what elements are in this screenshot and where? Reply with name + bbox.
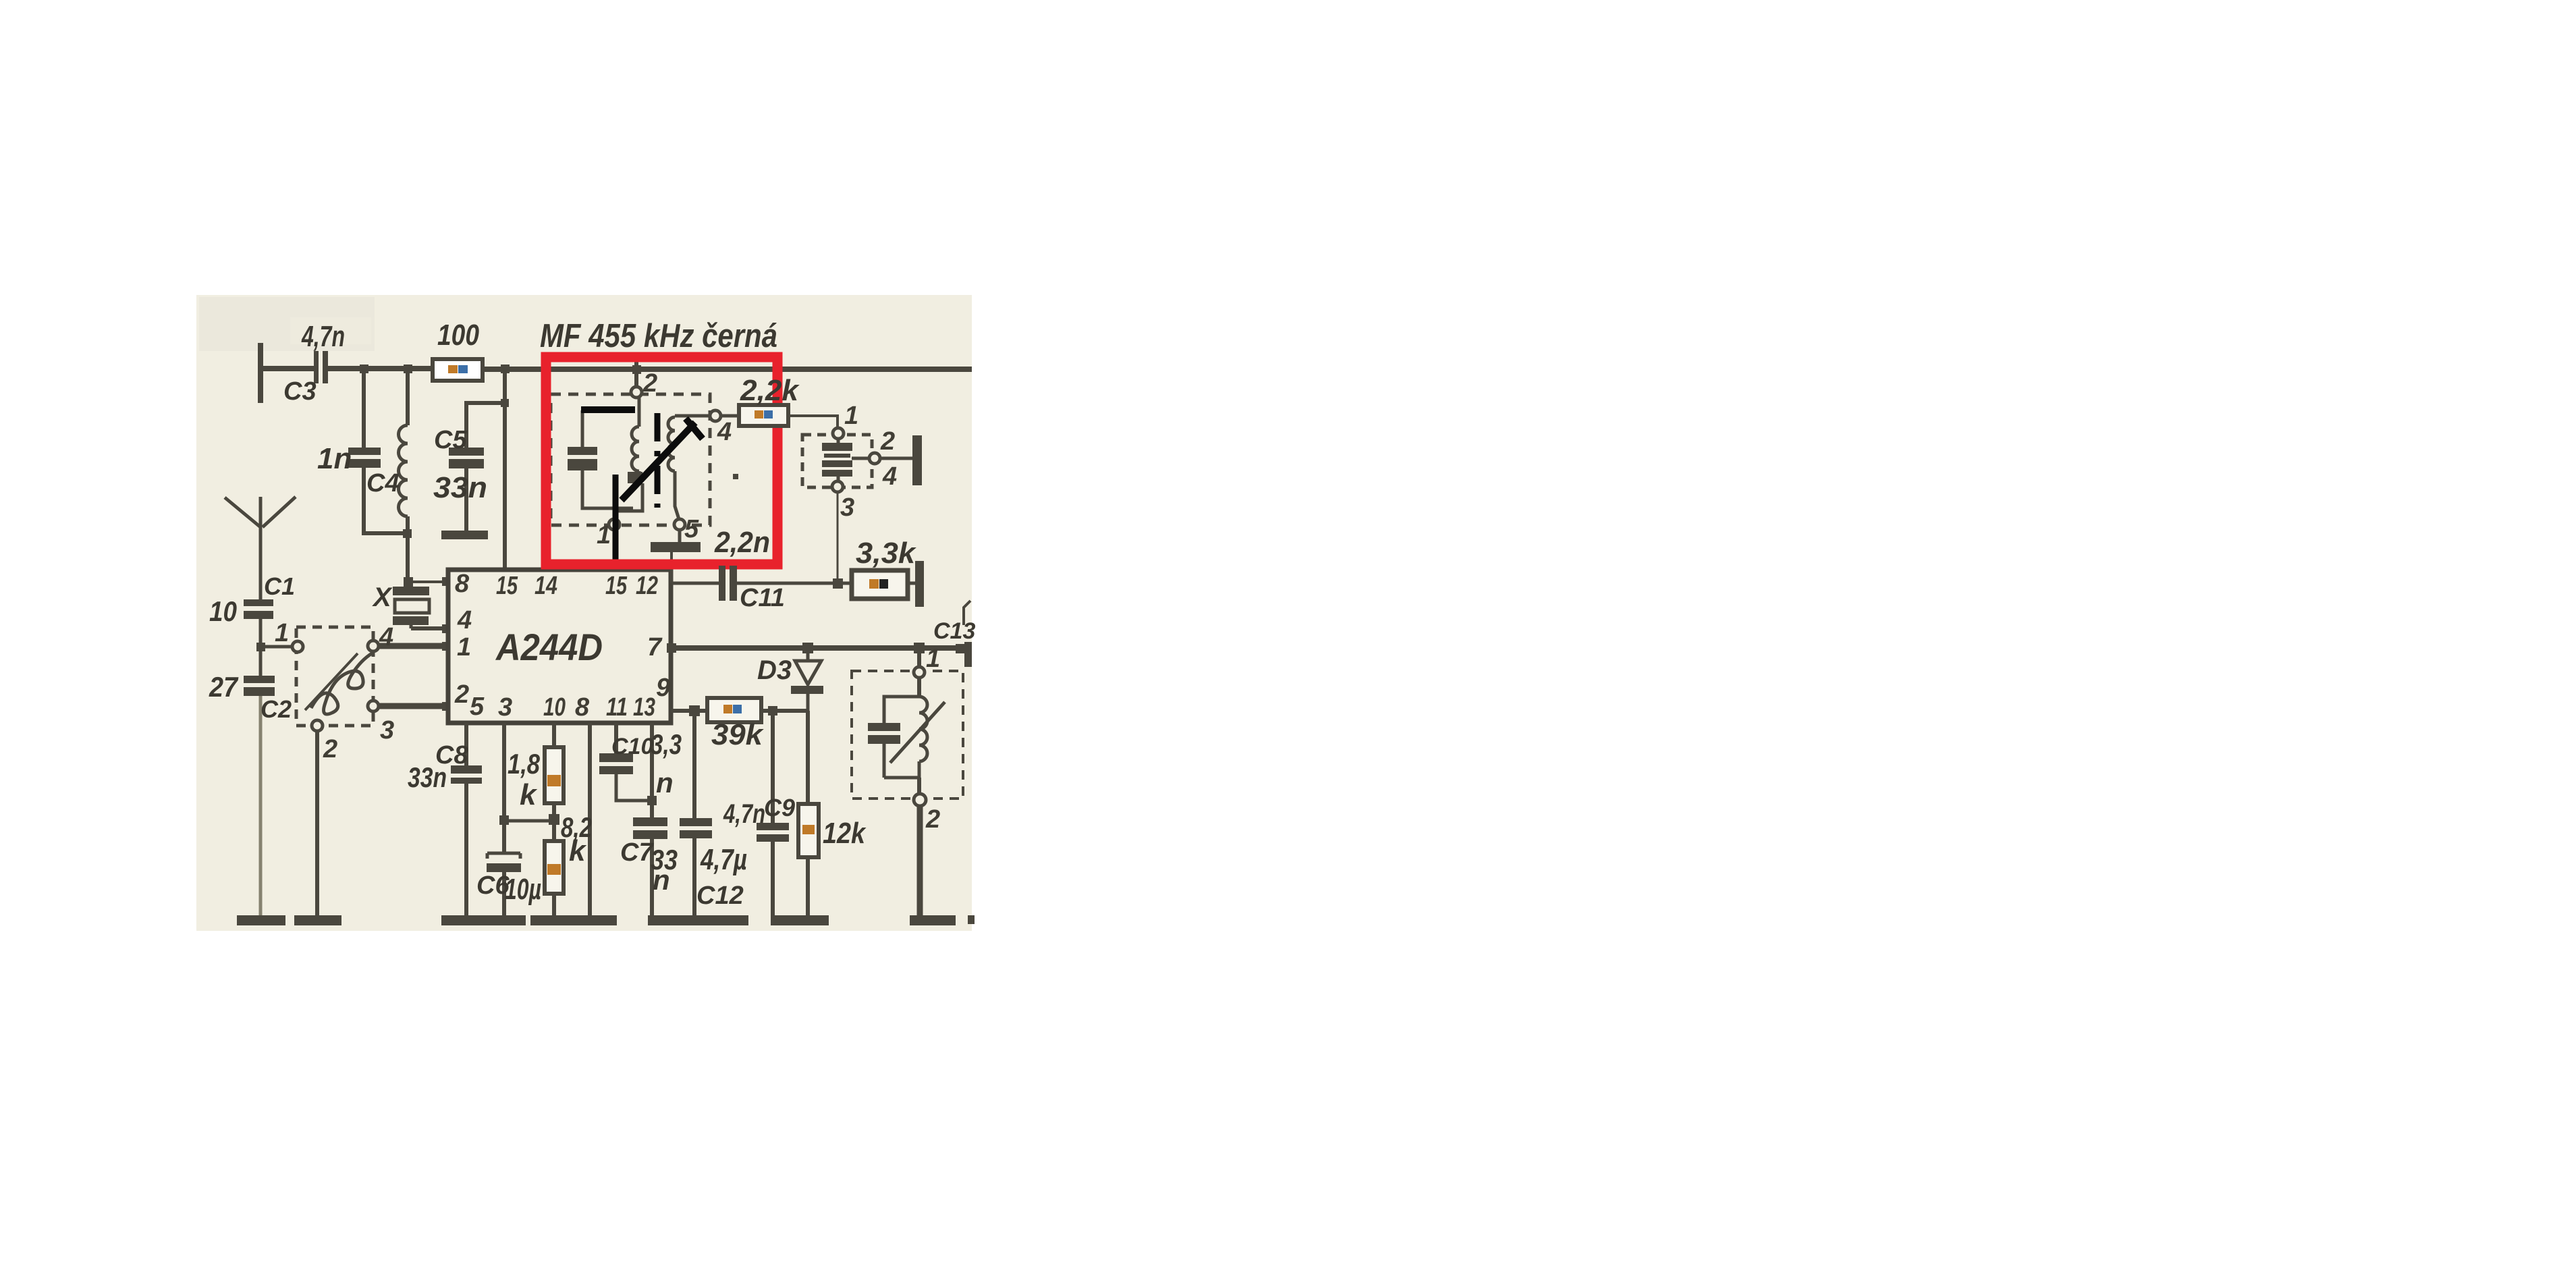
svg-text:k: k (569, 834, 587, 867)
svg-text:3: 3 (498, 693, 512, 722)
svg-text:10: 10 (209, 595, 237, 627)
svg-text:3: 3 (380, 716, 394, 745)
svg-text:1n: 1n (317, 442, 352, 475)
svg-text:4,7µ: 4,7µ (700, 843, 747, 876)
svg-text:C9: C9 (764, 794, 795, 821)
svg-text:11: 11 (606, 693, 628, 722)
svg-text:C10: C10 (611, 734, 653, 759)
svg-text:1: 1 (275, 619, 289, 647)
svg-text:1: 1 (926, 645, 940, 673)
svg-text:D3: D3 (757, 655, 792, 685)
svg-text:9: 9 (656, 674, 670, 702)
svg-text:C5: C5 (434, 426, 467, 454)
svg-text:2: 2 (454, 680, 469, 709)
svg-text:10: 10 (543, 693, 566, 722)
svg-text:3: 3 (840, 493, 854, 522)
svg-text:2,2n: 2,2n (714, 526, 770, 559)
svg-text:100: 100 (437, 319, 479, 352)
svg-text:4,7n: 4,7n (301, 320, 345, 353)
svg-text:1: 1 (457, 633, 471, 661)
svg-text:15: 15 (605, 572, 628, 600)
svg-text:C3: C3 (283, 377, 317, 406)
svg-text:14: 14 (535, 572, 557, 600)
svg-text:A244D: A244D (495, 626, 603, 668)
svg-text:4: 4 (717, 418, 732, 446)
svg-text:C7: C7 (620, 838, 654, 867)
svg-text:5: 5 (684, 515, 699, 543)
svg-text:8: 8 (455, 570, 470, 598)
svg-text:4: 4 (379, 623, 393, 651)
svg-text:MF 455 kHz černá: MF 455 kHz černá (540, 318, 777, 354)
svg-text:2: 2 (642, 369, 657, 398)
svg-text:3,3: 3,3 (651, 728, 682, 760)
svg-text:33n: 33n (433, 471, 487, 504)
svg-text:C13: C13 (933, 618, 975, 644)
svg-text:C2: C2 (261, 695, 292, 723)
svg-text:2: 2 (323, 735, 337, 763)
svg-text:3,3k: 3,3k (856, 537, 917, 570)
svg-text:1: 1 (844, 402, 858, 430)
svg-text:k: k (520, 778, 538, 811)
svg-text:13: 13 (633, 693, 655, 722)
svg-text:C11: C11 (740, 584, 785, 612)
svg-text:2,2k: 2,2k (740, 374, 800, 407)
svg-text:39k: 39k (711, 718, 765, 751)
svg-text:C12: C12 (696, 882, 744, 910)
svg-text:4: 4 (882, 462, 897, 491)
svg-text:12: 12 (636, 572, 658, 600)
svg-text:n: n (656, 767, 674, 799)
svg-text:n: n (653, 864, 670, 896)
svg-text:X: X (372, 583, 393, 612)
svg-text:8: 8 (575, 693, 590, 722)
svg-text:2: 2 (925, 805, 940, 834)
svg-text:10µ: 10µ (505, 873, 541, 906)
svg-text:1,8: 1,8 (508, 748, 541, 780)
svg-text:12k: 12k (823, 817, 867, 850)
svg-text:1: 1 (597, 521, 611, 549)
svg-text:33n: 33n (408, 761, 447, 793)
svg-text:4: 4 (457, 606, 472, 634)
svg-text:C1: C1 (264, 572, 295, 600)
svg-text:2: 2 (880, 427, 895, 456)
svg-text:4,7n: 4,7n (723, 799, 765, 829)
svg-text:5: 5 (470, 693, 485, 721)
svg-text:15: 15 (496, 572, 518, 600)
svg-text:7: 7 (647, 633, 663, 661)
svg-text:C4: C4 (366, 469, 400, 497)
svg-text:27: 27 (209, 671, 238, 703)
